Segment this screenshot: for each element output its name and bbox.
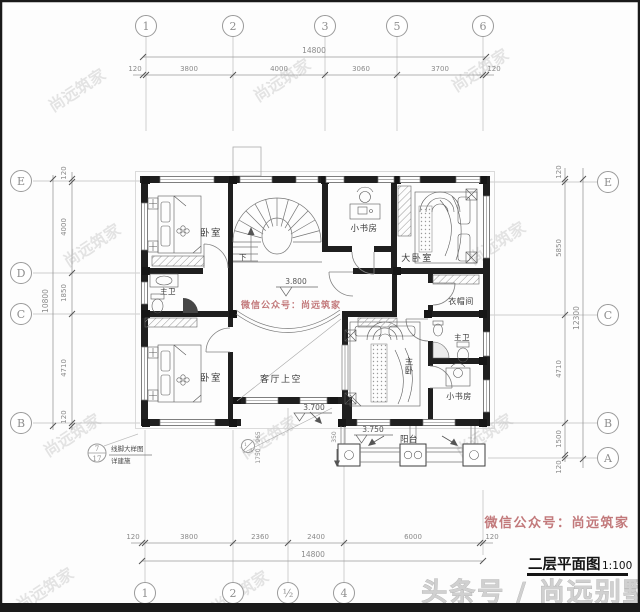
room-label-master1: 大卧室 bbox=[401, 252, 433, 264]
grid-label: 6 bbox=[480, 20, 487, 33]
brand-watermarks: 尚远筑家 尚远筑家 尚远筑家 尚远筑家 尚远筑家 尚远筑家 尚远筑家 尚远筑家 … bbox=[13, 44, 530, 612]
grid-label: E bbox=[17, 175, 25, 188]
room-label-study2: 小书房 bbox=[446, 391, 472, 401]
dim-bottom-seg: 2400 bbox=[307, 533, 325, 541]
room-label-bath1: 主卫 bbox=[160, 286, 176, 296]
level-balcony: 3.750 bbox=[362, 425, 384, 434]
dim-bottom-seg: 120 bbox=[126, 533, 139, 541]
dim-bottom-seg: 3800 bbox=[180, 533, 198, 541]
wechat-watermark-corner: 微信公众号：尚远筑家 bbox=[483, 515, 629, 531]
dim-bottom-seg: 2360 bbox=[251, 533, 269, 541]
wardrobe bbox=[398, 186, 411, 236]
dim-left-seg: 120 bbox=[60, 166, 68, 179]
doors bbox=[204, 244, 455, 388]
callout-sheet: 17 bbox=[93, 455, 102, 463]
bed bbox=[148, 345, 201, 402]
dim-bottom-seg: 6000 bbox=[404, 533, 422, 541]
grid-label: 1 bbox=[142, 587, 149, 600]
callout-note: 详建施 bbox=[111, 456, 131, 465]
desk bbox=[350, 187, 380, 219]
drawing-title: 二层平面图 bbox=[528, 556, 601, 573]
wechat-watermark-center: 微信公众号：尚远筑家 bbox=[240, 299, 341, 311]
wardrobe bbox=[358, 318, 397, 327]
stair-down-label: 下 bbox=[239, 253, 247, 262]
grid-label: 2 bbox=[230, 20, 237, 33]
dim-right-overall: 12300 bbox=[572, 306, 581, 330]
dim-top-seg: 120 bbox=[487, 65, 500, 73]
dim-top-seg: 3060 bbox=[352, 65, 370, 73]
dim-top-overall: 14800 bbox=[302, 46, 326, 55]
grid-label: A bbox=[603, 452, 613, 465]
brand-watermark: 尚远筑家 bbox=[60, 219, 125, 270]
callout-num: 7 bbox=[95, 445, 99, 453]
brand-watermark: 尚远筑家 bbox=[250, 54, 315, 105]
callout-title: 线脚大样图 bbox=[111, 444, 144, 453]
dim-left-seg: 4000 bbox=[60, 218, 68, 236]
grid-label: D bbox=[17, 267, 26, 280]
grid-label: C bbox=[17, 308, 25, 321]
grid-label: 2 bbox=[230, 587, 237, 600]
floor-plan-page: 尚远筑家 尚远筑家 尚远筑家 尚远筑家 尚远筑家 尚远筑家 尚远筑家 尚远筑家 … bbox=[0, 0, 640, 612]
dim-left-seg: 1850 bbox=[60, 284, 68, 302]
room-label-bedroom1: 卧室 bbox=[200, 227, 222, 239]
staircase: 下 bbox=[233, 198, 322, 262]
dim-bottom-seg: 120 bbox=[485, 533, 498, 541]
title-underline bbox=[527, 573, 628, 576]
dim-top-seg: 4000 bbox=[270, 65, 288, 73]
level-void: 3.700 bbox=[303, 403, 325, 412]
floor-plan-drawing: 尚远筑家 尚远筑家 尚远筑家 尚远筑家 尚远筑家 尚远筑家 尚远筑家 尚远筑家 … bbox=[0, 0, 640, 612]
dim-left-overall: 10800 bbox=[41, 289, 50, 313]
dim-right-seg: 5850 bbox=[555, 239, 563, 257]
room-label-study1: 小书房 bbox=[350, 223, 377, 234]
bed bbox=[415, 189, 477, 263]
wardrobe bbox=[433, 275, 479, 284]
dim-top-seg: 3700 bbox=[431, 65, 449, 73]
grid-label: 3 bbox=[322, 20, 329, 33]
dim-local: 350 bbox=[331, 431, 338, 443]
brand-watermark: 尚远筑家 bbox=[237, 411, 302, 462]
grid-label: ½ bbox=[283, 587, 294, 600]
grid-label: 4 bbox=[341, 587, 348, 600]
dim-right-seg: 120 bbox=[555, 165, 563, 178]
grid-label: 5 bbox=[394, 20, 401, 33]
plan-outline bbox=[136, 147, 495, 429]
grid-label: C bbox=[604, 309, 612, 322]
wardrobe bbox=[145, 318, 197, 327]
bottom-bar bbox=[0, 603, 640, 612]
dim-bottom-overall: 14800 bbox=[301, 550, 325, 559]
drawing-scale: 1:100 bbox=[602, 560, 632, 572]
room-label-master2: 主卧 bbox=[403, 356, 413, 375]
dim-top-seg: 120 bbox=[128, 65, 141, 73]
dim-local: 1750 bbox=[255, 448, 262, 463]
grid-label: B bbox=[17, 417, 25, 430]
title-block: 二层平面图 1:100 bbox=[527, 556, 632, 576]
level-hall: 3.800 bbox=[285, 277, 307, 286]
bed bbox=[148, 196, 201, 253]
dim-right-seg: 120 bbox=[555, 460, 563, 473]
room-label-void: 客厅上空 bbox=[260, 373, 302, 385]
room-label-cloak: 衣帽间 bbox=[448, 296, 474, 306]
minor-grid-num: 1 bbox=[244, 442, 247, 448]
dim-left-seg: 120 bbox=[60, 410, 68, 423]
dim-right-seg: 4710 bbox=[555, 360, 563, 378]
dim-left-seg: 4710 bbox=[60, 359, 68, 377]
room-label-bedroom2: 卧室 bbox=[200, 372, 222, 384]
brand-watermark: 尚远筑家 bbox=[45, 64, 110, 115]
detail-callout: 7 17 线脚大样图 详建施 bbox=[88, 434, 152, 465]
grid-label: B bbox=[604, 417, 612, 430]
dim-local: 965 bbox=[255, 431, 262, 443]
room-label-bath2: 主卫 bbox=[454, 332, 470, 342]
dim-top-seg: 3800 bbox=[180, 65, 198, 73]
grid-label: E bbox=[604, 176, 612, 189]
dim-right-seg: 1500 bbox=[555, 430, 563, 448]
brand-watermark: 尚远筑家 bbox=[448, 44, 513, 95]
furniture bbox=[145, 186, 479, 406]
grid-label: 1 bbox=[143, 20, 150, 33]
room-label-balcony: 阳台 bbox=[400, 434, 418, 445]
wardrobe bbox=[152, 256, 204, 266]
desk bbox=[446, 363, 470, 386]
